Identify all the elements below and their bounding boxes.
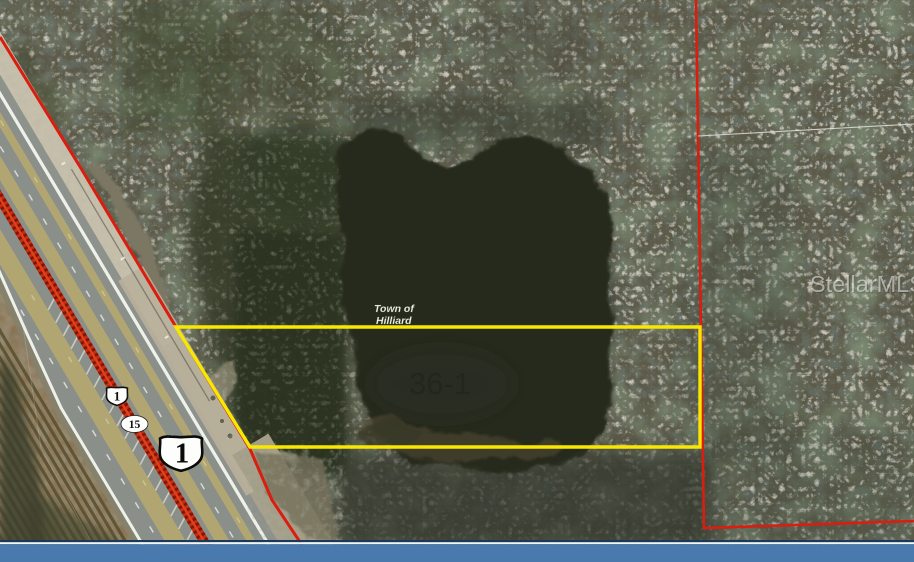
svg-text:1: 1: [114, 389, 121, 404]
svg-text:15: 15: [129, 419, 141, 431]
svg-text:Town of: Town of: [374, 303, 415, 315]
svg-text:1: 1: [175, 438, 190, 470]
svg-text:Hilliard: Hilliard: [376, 315, 412, 327]
svg-text:StellarMLS: StellarMLS: [810, 271, 914, 297]
svg-text:36-1: 36-1: [409, 366, 471, 401]
